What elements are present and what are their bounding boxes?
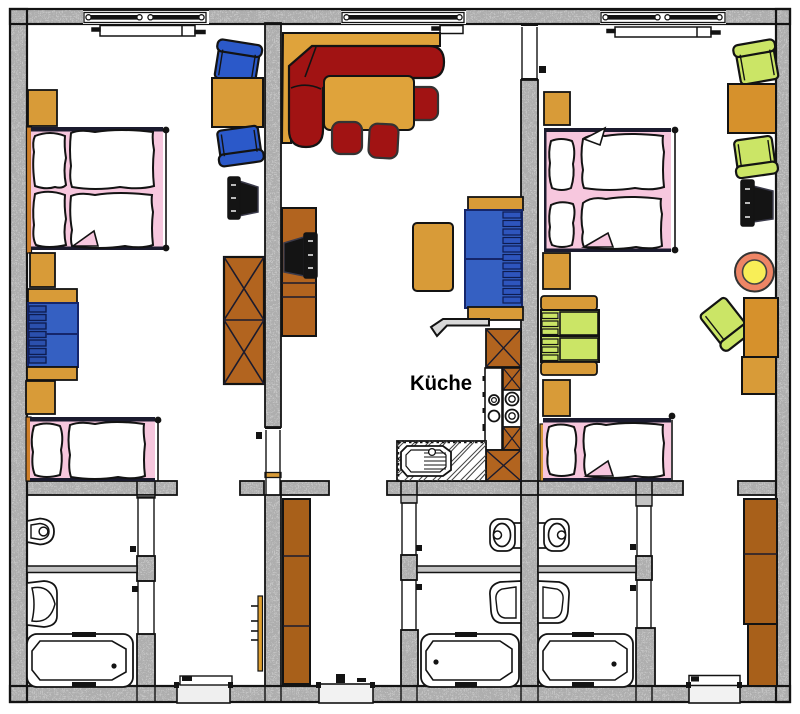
svg-text:Küche: Küche	[410, 372, 472, 395]
